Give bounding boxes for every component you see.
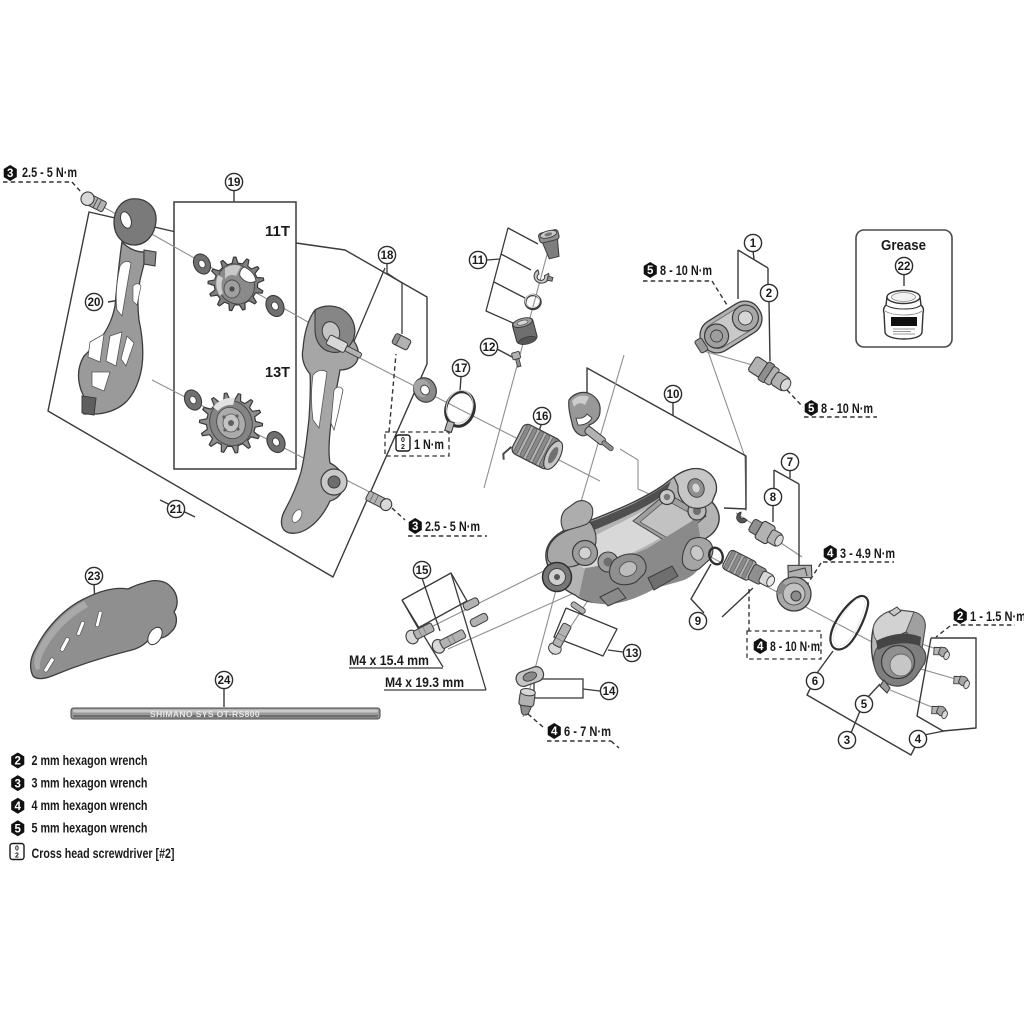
- svg-text:3 mm hexagon wrench: 3 mm hexagon wrench: [32, 775, 148, 790]
- svg-text:3: 3: [844, 735, 850, 747]
- svg-text:2: 2: [957, 611, 963, 623]
- svg-text:6: 6: [812, 676, 818, 688]
- svg-text:20: 20: [88, 297, 101, 309]
- svg-text:5: 5: [647, 265, 654, 277]
- svg-text:5 mm hexagon wrench: 5 mm hexagon wrench: [32, 821, 148, 836]
- svg-text:2.5 - 5 N·m: 2.5 - 5 N·m: [22, 165, 77, 180]
- svg-text:1 - 1.5 N·m: 1 - 1.5 N·m: [970, 609, 1024, 624]
- svg-text:16: 16: [536, 411, 549, 423]
- svg-text:11: 11: [472, 255, 485, 267]
- svg-text:8 - 10 N·m: 8 - 10 N·m: [770, 639, 820, 654]
- svg-text:13T: 13T: [265, 365, 290, 381]
- svg-text:15: 15: [416, 565, 429, 577]
- svg-text:4: 4: [827, 548, 834, 560]
- svg-text:3: 3: [15, 778, 21, 790]
- svg-text:4: 4: [551, 726, 558, 738]
- svg-text:8: 8: [770, 492, 777, 504]
- svg-text:8 - 10 N·m: 8 - 10 N·m: [821, 401, 873, 416]
- svg-text:12: 12: [483, 342, 496, 354]
- svg-text:1 N·m: 1 N·m: [414, 437, 444, 452]
- svg-text:3: 3: [7, 168, 13, 180]
- svg-text:2: 2: [766, 288, 772, 300]
- svg-text:3: 3: [412, 521, 418, 533]
- svg-text:13: 13: [626, 648, 639, 660]
- svg-text:2: 2: [401, 444, 405, 451]
- svg-text:2: 2: [15, 853, 19, 860]
- svg-text:19: 19: [228, 177, 241, 189]
- svg-text:Cross head screwdriver [#2]: Cross head screwdriver [#2]: [32, 846, 175, 861]
- svg-text:10: 10: [667, 389, 680, 401]
- svg-text:0: 0: [401, 437, 405, 444]
- svg-text:M4 x 19.3 mm: M4 x 19.3 mm: [385, 675, 464, 690]
- svg-text:4: 4: [15, 801, 22, 813]
- svg-text:14: 14: [603, 686, 616, 698]
- svg-text:SHIMANO SYS OT-RS800: SHIMANO SYS OT-RS800: [150, 709, 260, 719]
- svg-text:0: 0: [15, 846, 19, 853]
- svg-text:8 - 10 N·m: 8 - 10 N·m: [660, 263, 712, 278]
- svg-text:4: 4: [915, 734, 922, 746]
- svg-text:2 mm hexagon wrench: 2 mm hexagon wrench: [32, 753, 148, 768]
- svg-text:4 mm hexagon wrench: 4 mm hexagon wrench: [32, 798, 148, 813]
- svg-text:3 - 4.9 N·m: 3 - 4.9 N·m: [840, 546, 895, 561]
- svg-text:7: 7: [787, 457, 793, 469]
- svg-text:21: 21: [170, 504, 183, 516]
- svg-text:1: 1: [750, 238, 757, 250]
- svg-text:17: 17: [455, 363, 468, 375]
- svg-text:9: 9: [695, 616, 701, 628]
- svg-text:6 - 7 N·m: 6 - 7 N·m: [564, 724, 611, 739]
- svg-text:5: 5: [808, 403, 815, 415]
- svg-text:23: 23: [88, 571, 101, 583]
- svg-text:2: 2: [15, 756, 21, 768]
- svg-text:22: 22: [898, 261, 911, 273]
- svg-text:4: 4: [757, 641, 764, 653]
- svg-text:5: 5: [861, 699, 868, 711]
- svg-text:M4 x 15.4 mm: M4 x 15.4 mm: [349, 653, 429, 668]
- svg-text:2.5 - 5 N·m: 2.5 - 5 N·m: [425, 519, 480, 534]
- svg-text:11T: 11T: [265, 224, 290, 240]
- svg-text:18: 18: [381, 250, 394, 262]
- svg-text:Grease: Grease: [881, 238, 926, 254]
- svg-text:5: 5: [15, 824, 22, 836]
- svg-text:24: 24: [218, 675, 231, 687]
